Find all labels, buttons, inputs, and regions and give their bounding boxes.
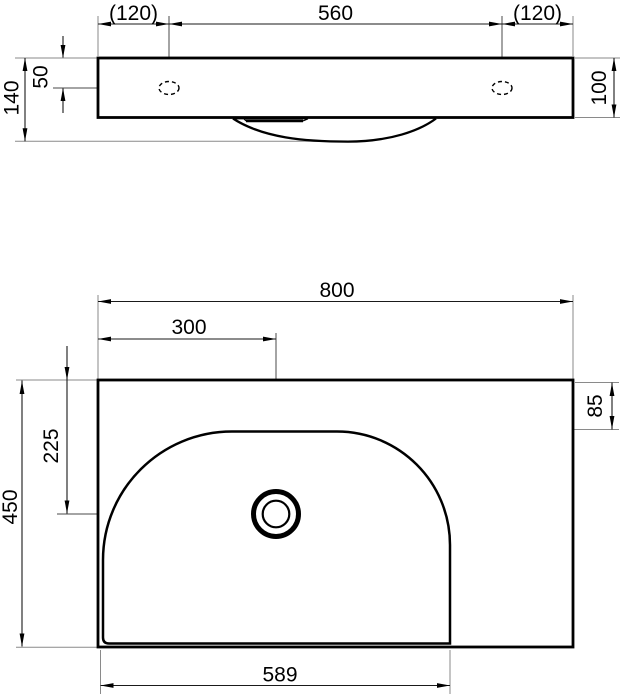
dim-hole-offset-left: (120)	[109, 2, 158, 25]
dim-depth: 450	[0, 489, 22, 524]
washbasin-technical-drawing: (120) 560 (120) 140 50 100	[0, 0, 624, 696]
drain-detail	[233, 119, 308, 121]
dim-faucet-from-front: 225	[40, 428, 63, 463]
basin-body-plan	[98, 380, 573, 647]
basin-body-front	[98, 58, 573, 118]
plan-view: 800 300 589 225 450 85	[0, 279, 619, 694]
drawing-canvas: (120) 560 (120) 140 50 100	[0, 0, 624, 696]
dim-total-height: 140	[1, 80, 24, 115]
dim-hole-offset-right: (120)	[513, 2, 562, 25]
dim-hole-spacing: 560	[318, 2, 353, 25]
front-view: (120) 560 (120) 140 50 100	[1, 2, 621, 142]
dim-hole-from-top: 50	[30, 65, 53, 88]
dim-body-height: 100	[588, 70, 611, 105]
dim-basin-width: 589	[262, 664, 297, 687]
dim-width: 800	[319, 279, 354, 302]
dim-basin-top-offset: 85	[584, 394, 607, 417]
dim-faucet-from-left: 300	[171, 316, 206, 339]
